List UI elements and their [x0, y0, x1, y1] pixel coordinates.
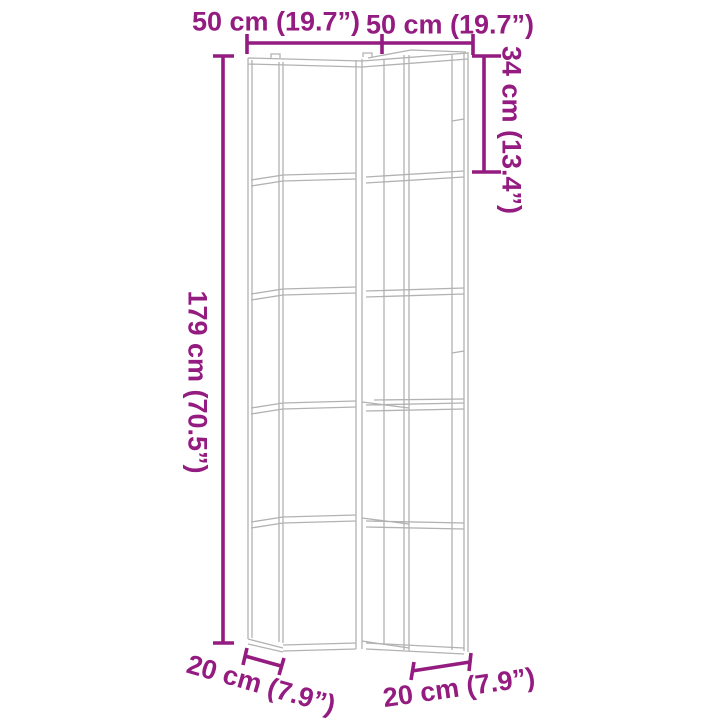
dim-line-left-height	[213, 56, 234, 643]
left-shelf-lines	[251, 173, 356, 651]
label-left-height: 179 cm (70.5”)	[184, 290, 211, 473]
label-top-width-right: 50 cm (19.7”)	[366, 12, 534, 39]
left-side-panel-lines	[248, 53, 372, 652]
dimension-diagram: 50 cm (19.7”) 50 cm (19.7”) 34 cm (13.4”…	[0, 0, 720, 720]
dimension-lines	[213, 34, 501, 680]
diagram-canvas	[0, 0, 720, 720]
label-top-width-left: 50 cm (19.7”)	[192, 9, 360, 36]
bookshelf-line-art	[248, 50, 468, 654]
label-right-height: 34 cm (13.4”)	[498, 46, 525, 214]
right-wing-frame-lines	[362, 50, 468, 654]
right-shelf-lines	[362, 171, 464, 648]
center-divider-lines	[356, 59, 362, 649]
